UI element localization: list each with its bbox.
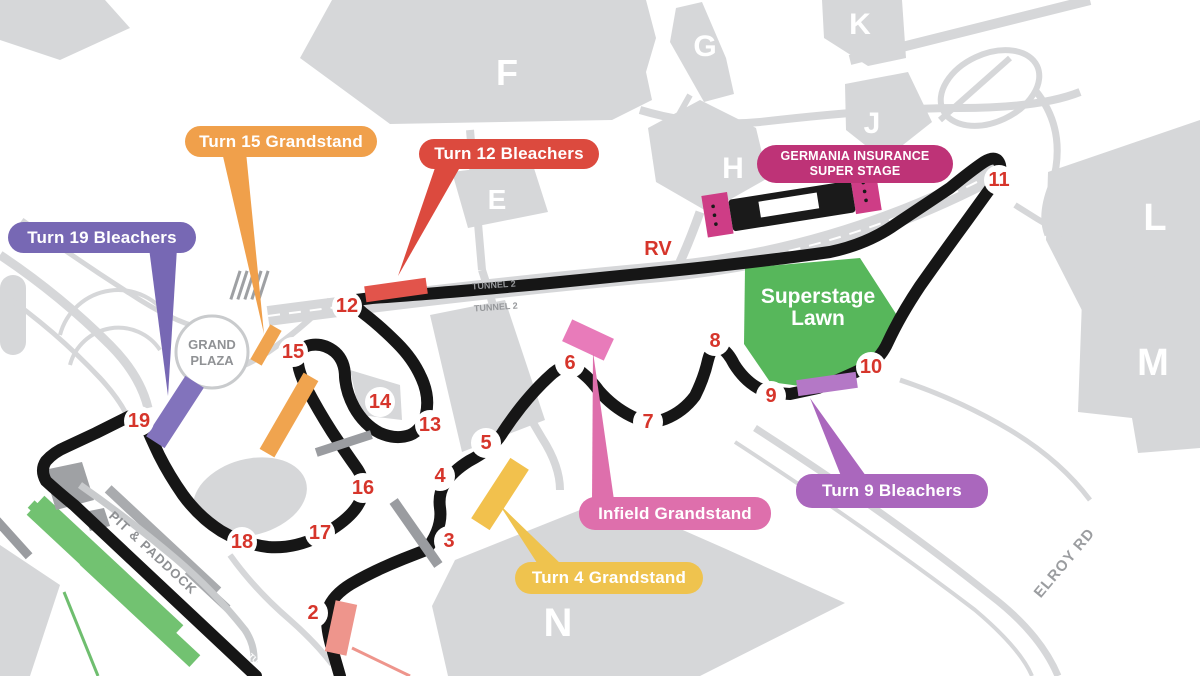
- turn15-grandstand-marker-2[interactable]: [260, 373, 319, 458]
- label-turn-12-bleachers[interactable]: Turn 12 Bleachers: [419, 139, 599, 169]
- lot-bottomleft: [0, 545, 60, 676]
- tower-structure: [229, 270, 269, 299]
- turn-badge-10: 10: [856, 352, 886, 382]
- road-h-to-rv: [680, 212, 700, 262]
- superstage-lawn-text-2: Lawn: [791, 307, 845, 330]
- tunnel2-label-lower: TUNNEL 2: [474, 300, 518, 313]
- lot-letter-L: L: [1143, 197, 1166, 239]
- label-germania-super-stage[interactable]: GERMANIA INSURANCE SUPER STAGE: [757, 145, 953, 183]
- turn-badge-8: 8: [700, 326, 730, 356]
- turn4-grandstand-marker[interactable]: [471, 458, 529, 530]
- elroy-rd-label: ELROY RD: [1031, 525, 1099, 601]
- circuit-venue-map: TUNNEL 1 F G: [0, 0, 1200, 676]
- label-turn-4-grandstand[interactable]: Turn 4 Grandstand: [515, 562, 703, 594]
- lot-left-capsule: [0, 275, 26, 355]
- turn-badge-19: 19: [124, 406, 154, 436]
- lot-letter-M: M: [1137, 342, 1169, 384]
- turn19-label-tail: [149, 248, 177, 396]
- elroy-road-1: [755, 428, 1058, 676]
- turn-badge-18: 18: [227, 527, 257, 557]
- lot-letter-G: G: [693, 30, 716, 63]
- lot-topleft-wedge: [0, 0, 130, 60]
- turn-badge-13: 13: [415, 410, 445, 440]
- turn-badge-2: 2: [298, 598, 328, 628]
- infield-label-tail: [592, 352, 614, 500]
- turn-badge-4: 4: [425, 461, 455, 491]
- green-label-tail: [64, 592, 98, 676]
- turn-badge-11: 11: [984, 165, 1014, 195]
- germania-label-line2: SUPER STAGE: [810, 164, 901, 179]
- turn-badge-9: 9: [756, 381, 786, 411]
- grand-plaza-text-1: GRAND: [188, 337, 236, 352]
- turn15-label-tail: [222, 152, 264, 334]
- label-turn-9-bleachers[interactable]: Turn 9 Bleachers: [796, 474, 988, 508]
- turn-badge-12: 12: [332, 291, 362, 321]
- turn-badge-7: 7: [633, 407, 663, 437]
- turn19-bleachers-marker[interactable]: [146, 376, 204, 448]
- lot-letter-N: N: [544, 601, 573, 645]
- turn-badge-6: 6: [555, 348, 585, 378]
- label-turn-19-bleachers[interactable]: Turn 19 Bleachers: [8, 222, 196, 253]
- lot-letter-E: E: [488, 184, 507, 215]
- turn-badge-5: 5: [471, 428, 501, 458]
- turn-badge-14: 14: [365, 387, 395, 417]
- turn12-label-tail: [398, 162, 463, 276]
- lot-letter-J: J: [864, 107, 881, 140]
- turn9-label-tail: [810, 398, 866, 476]
- label-turn-15-grandstand[interactable]: Turn 15 Grandstand: [185, 126, 377, 157]
- label-infield-grandstand[interactable]: Infield Grandstand: [579, 497, 771, 530]
- turn2-marker-tail: [352, 648, 410, 676]
- rv-area-label: RV: [644, 238, 672, 260]
- turn-badge-3: 3: [434, 526, 464, 556]
- lot-F: [300, 0, 656, 124]
- grand-plaza-text-2: PLAZA: [190, 353, 234, 368]
- superstage-lawn-text-1: Superstage: [761, 285, 875, 308]
- turn-badge-16: 16: [348, 473, 378, 503]
- turn-badge-15: 15: [278, 337, 308, 367]
- germania-label-line1: GERMANIA INSURANCE: [781, 149, 930, 164]
- turn-badge-17: 17: [305, 518, 335, 548]
- lot-letter-F: F: [496, 52, 518, 93]
- lot-letter-H: H: [722, 152, 744, 185]
- road-loop-topright: [929, 35, 1052, 141]
- lot-letter-K: K: [849, 8, 871, 41]
